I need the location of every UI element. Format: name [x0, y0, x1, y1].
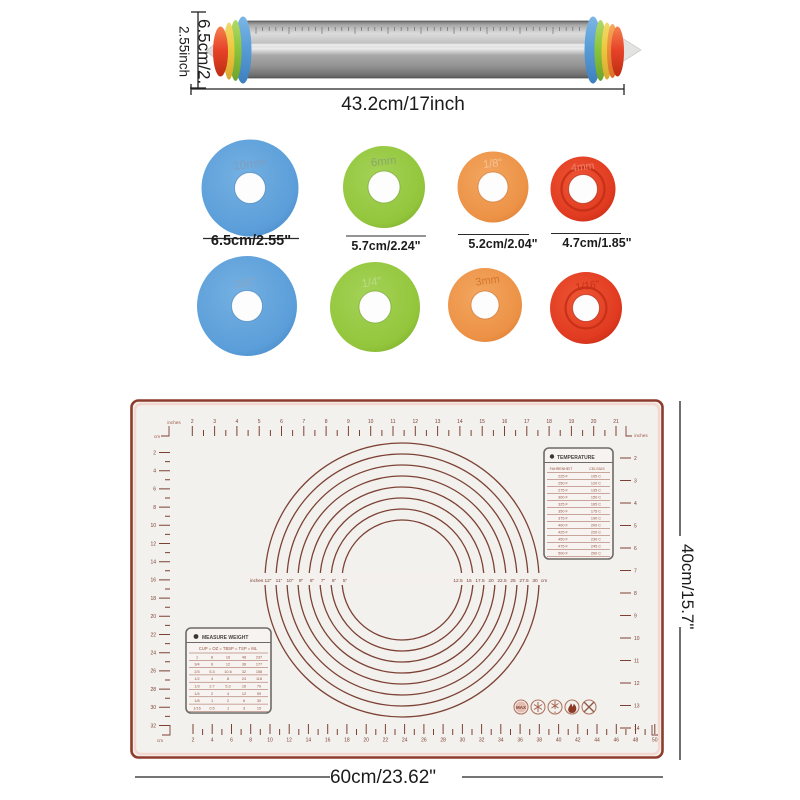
svg-text:7: 7 [634, 568, 637, 574]
svg-text:59: 59 [257, 692, 261, 696]
svg-text:12: 12 [226, 663, 230, 667]
svg-text:4: 4 [227, 692, 229, 696]
svg-text:40cm/15.7": 40cm/15.7" [678, 544, 697, 629]
svg-text:9: 9 [347, 419, 350, 425]
svg-text:12: 12 [150, 541, 156, 547]
svg-text:4: 4 [153, 469, 156, 475]
svg-text:8: 8 [249, 738, 252, 744]
svg-text:7": 7" [321, 578, 326, 584]
svg-text:17.5: 17.5 [475, 578, 485, 584]
svg-text:44: 44 [594, 738, 600, 744]
svg-text:inches: inches [167, 420, 181, 425]
svg-text:200 C: 200 C [591, 524, 601, 528]
svg-text:16: 16 [226, 655, 230, 659]
svg-text:8: 8 [227, 677, 229, 681]
svg-text:10: 10 [150, 523, 156, 529]
svg-text:CELSIUS: CELSIUS [589, 467, 605, 471]
svg-text:6: 6 [280, 419, 283, 425]
svg-text:4: 4 [236, 419, 239, 425]
svg-text:220 C: 220 C [591, 531, 601, 535]
svg-text:16: 16 [150, 578, 156, 584]
svg-text:150 C: 150 C [591, 496, 601, 500]
svg-text:24: 24 [402, 738, 408, 744]
svg-text:9": 9" [299, 578, 304, 584]
svg-text:2: 2 [191, 419, 194, 425]
svg-text:42: 42 [575, 738, 581, 744]
svg-text:60cm/23.62": 60cm/23.62" [330, 767, 436, 788]
svg-text:48: 48 [242, 655, 246, 659]
svg-text:2: 2 [227, 699, 229, 703]
svg-text:15: 15 [479, 419, 485, 425]
svg-text:6": 6" [332, 578, 337, 584]
svg-text:260 C: 260 C [591, 552, 601, 556]
svg-text:32: 32 [242, 670, 246, 674]
svg-text:237: 237 [256, 655, 262, 659]
svg-text:11: 11 [390, 419, 395, 425]
svg-text:105 C: 105 C [591, 475, 601, 479]
svg-text:30: 30 [150, 705, 156, 711]
svg-text:22.5: 22.5 [497, 578, 507, 584]
svg-text:27.5: 27.5 [519, 578, 529, 584]
svg-text:4mm: 4mm [570, 160, 595, 174]
svg-text:12": 12" [264, 578, 271, 584]
svg-text:12.5: 12.5 [453, 578, 463, 584]
svg-text:11: 11 [634, 658, 639, 664]
svg-text:TEMPERATURE: TEMPERATURE [557, 455, 595, 461]
svg-text:24: 24 [150, 651, 156, 657]
svg-text:1/16: 1/16 [193, 706, 200, 710]
svg-text:177: 177 [256, 663, 262, 667]
svg-text:46: 46 [614, 738, 620, 744]
svg-text:5: 5 [258, 419, 261, 425]
svg-text:22: 22 [383, 738, 389, 744]
svg-text:18: 18 [546, 419, 552, 425]
svg-text:50: 50 [652, 738, 658, 744]
svg-text:10: 10 [368, 419, 374, 425]
svg-text:8: 8 [634, 591, 637, 597]
svg-text:2: 2 [192, 738, 195, 744]
svg-text:14: 14 [634, 726, 640, 732]
svg-text:1: 1 [196, 655, 198, 659]
svg-text:275 F: 275 F [558, 489, 568, 493]
svg-text:1/4: 1/4 [194, 692, 199, 696]
svg-text:5.3: 5.3 [209, 670, 214, 674]
svg-text:19: 19 [569, 419, 575, 425]
svg-text:15: 15 [257, 706, 261, 710]
svg-text:18: 18 [344, 738, 350, 744]
svg-text:CUP = OZ = TBSP = TSP = ML: CUP = OZ = TBSP = TSP = ML [199, 646, 258, 651]
svg-text:12: 12 [242, 692, 246, 696]
svg-text:34: 34 [498, 738, 504, 744]
svg-text:1: 1 [227, 706, 229, 710]
svg-text:5.3: 5.3 [225, 685, 230, 689]
svg-text:10": 10" [286, 578, 293, 584]
svg-text:MEASURE WEIGHT: MEASURE WEIGHT [202, 635, 248, 641]
svg-text:3: 3 [634, 478, 637, 484]
svg-text:250 F: 250 F [558, 482, 568, 486]
svg-text:6: 6 [211, 663, 213, 667]
svg-text:8: 8 [325, 419, 328, 425]
svg-text:4.7cm/1.85": 4.7cm/1.85" [562, 236, 631, 250]
svg-text:6: 6 [153, 487, 156, 493]
svg-text:300 F: 300 F [558, 496, 568, 500]
svg-text:36: 36 [242, 663, 246, 667]
svg-text:14: 14 [150, 560, 156, 566]
svg-text:25: 25 [510, 578, 516, 584]
svg-text:230 C: 230 C [591, 538, 601, 542]
svg-text:18: 18 [150, 596, 156, 602]
svg-text:20: 20 [363, 738, 369, 744]
svg-text:118: 118 [256, 677, 262, 681]
svg-text:32: 32 [479, 738, 485, 744]
svg-text:190 C: 190 C [591, 517, 601, 521]
svg-text:10.6: 10.6 [224, 670, 231, 674]
svg-text:4: 4 [634, 501, 637, 507]
svg-text:325 F: 325 F [558, 503, 568, 507]
svg-text:1/3: 1/3 [194, 685, 199, 689]
svg-text:5.2cm/2.04": 5.2cm/2.04" [468, 237, 537, 251]
svg-text:5.7cm/2.24": 5.7cm/2.24" [351, 239, 420, 253]
svg-text:15: 15 [466, 578, 472, 584]
svg-text:8": 8" [310, 578, 315, 584]
svg-text:FAHRENHEIT: FAHRENHEIT [550, 467, 574, 471]
svg-text:1/8: 1/8 [194, 699, 199, 703]
svg-text:1/2: 1/2 [194, 677, 199, 681]
svg-text:6: 6 [243, 699, 245, 703]
svg-text:165 C: 165 C [591, 503, 601, 507]
svg-text:cm: cm [154, 434, 160, 439]
svg-text:28: 28 [440, 738, 446, 744]
svg-text:10: 10 [634, 636, 640, 642]
svg-text:14: 14 [306, 738, 312, 744]
svg-text:4: 4 [211, 677, 213, 681]
svg-text:4: 4 [211, 738, 214, 744]
svg-text:0.5: 0.5 [209, 706, 214, 710]
svg-text:30: 30 [532, 578, 538, 584]
svg-text:12: 12 [413, 419, 419, 425]
svg-text:475 F: 475 F [558, 545, 568, 549]
svg-text:38: 38 [537, 738, 543, 744]
svg-text:13: 13 [634, 703, 640, 709]
svg-text:43.2cm/17inch: 43.2cm/17inch [341, 94, 465, 115]
svg-text:8: 8 [153, 505, 156, 511]
svg-text:500 F: 500 F [558, 552, 568, 556]
svg-text:30: 30 [257, 699, 261, 703]
svg-text:16: 16 [242, 685, 246, 689]
svg-text:MAX: MAX [516, 705, 526, 710]
svg-text:2.55inch: 2.55inch [177, 26, 192, 77]
svg-text:5: 5 [634, 523, 637, 529]
svg-text:120 C: 120 C [591, 482, 601, 486]
svg-text:14: 14 [457, 419, 463, 425]
svg-text:cm: cm [541, 579, 547, 584]
svg-text:26: 26 [421, 738, 427, 744]
svg-text:22: 22 [150, 632, 156, 638]
svg-text:7: 7 [302, 419, 305, 425]
svg-text:3: 3 [243, 706, 245, 710]
svg-text:20: 20 [591, 419, 597, 425]
svg-text:9: 9 [634, 613, 637, 619]
svg-text:245 C: 245 C [591, 545, 601, 549]
svg-text:5": 5" [343, 578, 348, 584]
svg-text:2: 2 [153, 450, 156, 456]
svg-text:3: 3 [213, 419, 216, 425]
svg-text:6: 6 [230, 738, 233, 744]
svg-text:225 F: 225 F [558, 475, 568, 479]
svg-text:inches: inches [634, 433, 648, 438]
svg-text:375 F: 375 F [558, 517, 568, 521]
svg-text:6.5cm/2.55": 6.5cm/2.55" [211, 233, 291, 249]
svg-text:30: 30 [460, 738, 466, 744]
svg-text:6: 6 [634, 546, 637, 552]
svg-text:175 C: 175 C [591, 510, 601, 514]
svg-text:48: 48 [633, 738, 639, 744]
svg-text:8: 8 [211, 655, 213, 659]
svg-text:16: 16 [502, 419, 508, 425]
svg-text:2: 2 [211, 692, 213, 696]
svg-text:26: 26 [150, 669, 156, 675]
svg-text:79: 79 [257, 685, 261, 689]
svg-text:20: 20 [488, 578, 494, 584]
svg-text:40: 40 [556, 738, 562, 744]
svg-text:11": 11" [276, 578, 283, 584]
svg-text:12: 12 [286, 738, 292, 744]
svg-text:350 F: 350 F [558, 510, 568, 514]
svg-text:cm: cm [157, 738, 163, 743]
svg-text:28: 28 [150, 687, 156, 693]
svg-text:36: 36 [517, 738, 523, 744]
svg-text:inches: inches [250, 578, 264, 583]
svg-text:425 F: 425 F [558, 531, 568, 535]
svg-text:12: 12 [634, 681, 640, 687]
svg-text:20: 20 [150, 614, 156, 620]
svg-text:2/3: 2/3 [194, 670, 199, 674]
svg-text:135 C: 135 C [591, 489, 601, 493]
svg-text:17: 17 [524, 419, 530, 425]
svg-text:10: 10 [267, 738, 273, 744]
svg-text:400 F: 400 F [558, 524, 568, 528]
svg-text:13: 13 [435, 419, 441, 425]
svg-text:3/4: 3/4 [194, 663, 199, 667]
svg-text:158: 158 [256, 670, 262, 674]
svg-text:32: 32 [150, 723, 156, 729]
svg-text:21: 21 [613, 419, 619, 425]
svg-text:2.7: 2.7 [209, 685, 214, 689]
svg-text:2: 2 [634, 456, 637, 462]
svg-text:1: 1 [211, 699, 213, 703]
svg-text:450 F: 450 F [558, 538, 568, 542]
svg-text:24: 24 [242, 677, 246, 681]
svg-text:1/8": 1/8" [483, 157, 503, 171]
svg-text:16: 16 [325, 738, 331, 744]
